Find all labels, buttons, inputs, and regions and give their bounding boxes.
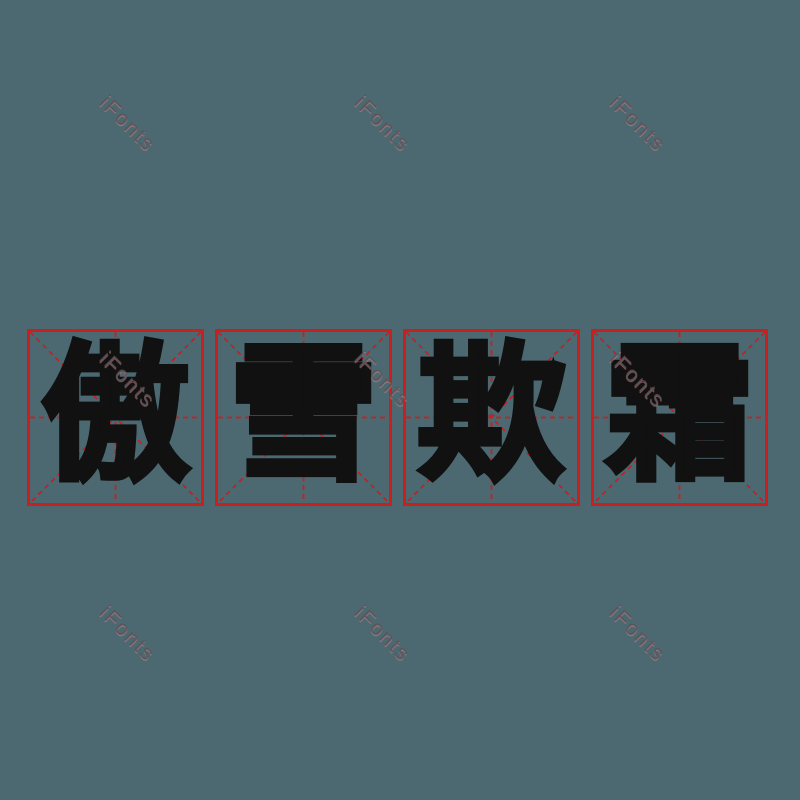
character-glyph: 欺 [418,341,566,489]
grid-cell: 雪 [215,329,392,506]
grid-cell: 傲 [27,329,204,506]
watermark-text: iFonts [349,601,415,667]
calligraphy-grid-row: 傲 雪 欺 霜 [27,329,768,506]
character-glyph: 雪 [230,341,378,489]
watermark-text: iFonts [94,91,160,157]
character-glyph: 傲 [42,341,190,489]
grid-cell: 霜 [591,329,768,506]
character-glyph: 霜 [606,341,754,489]
watermark-text: iFonts [604,91,670,157]
watermark-text: iFonts [604,601,670,667]
watermark-text: iFonts [94,601,160,667]
grid-cell: 欺 [403,329,580,506]
watermark-text: iFonts [349,91,415,157]
